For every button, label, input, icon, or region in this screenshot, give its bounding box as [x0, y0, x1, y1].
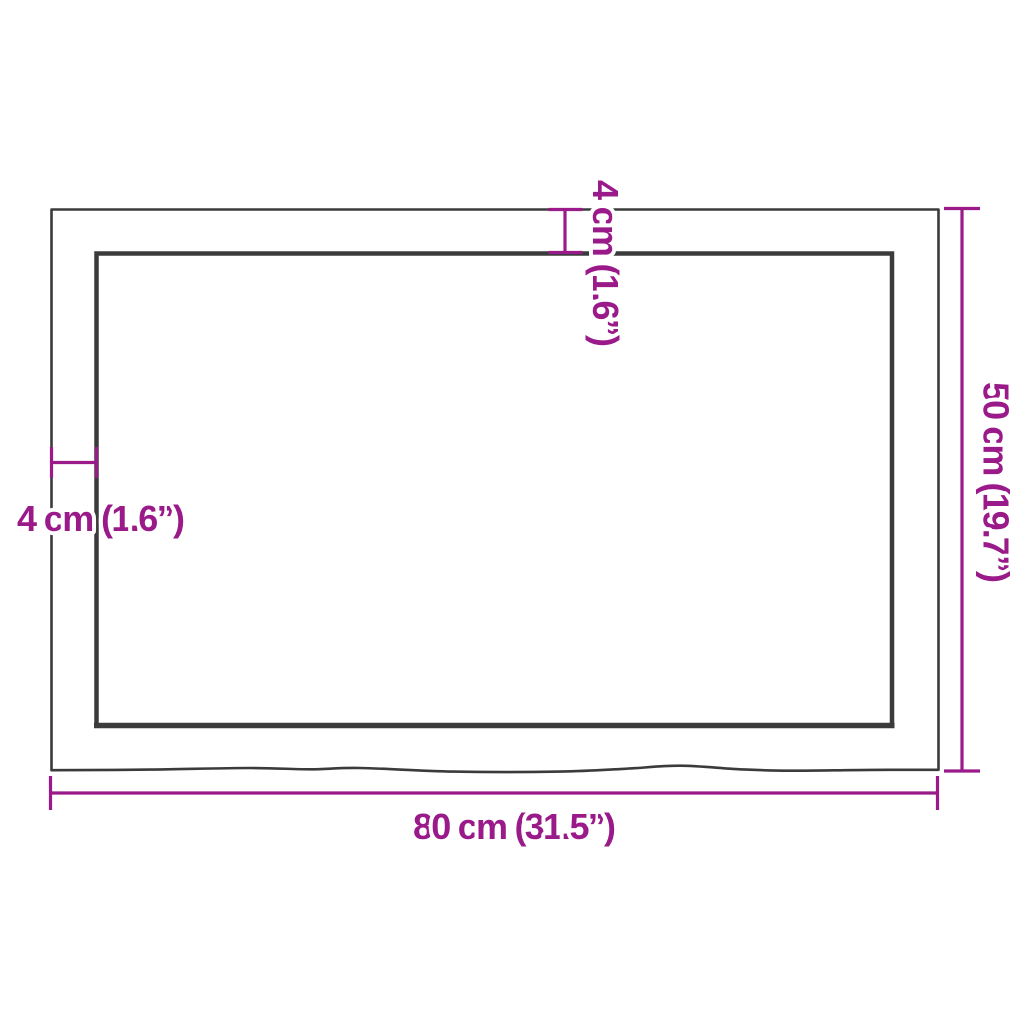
svg-text:50 cm (19.7”): 50 cm (19.7”) — [976, 382, 1017, 583]
svg-text:4 cm (1.6”): 4 cm (1.6”) — [17, 498, 185, 539]
svg-text:80 cm (31.5”): 80 cm (31.5”) — [413, 806, 616, 847]
svg-text:4 cm (1.6”): 4 cm (1.6”) — [585, 180, 626, 347]
